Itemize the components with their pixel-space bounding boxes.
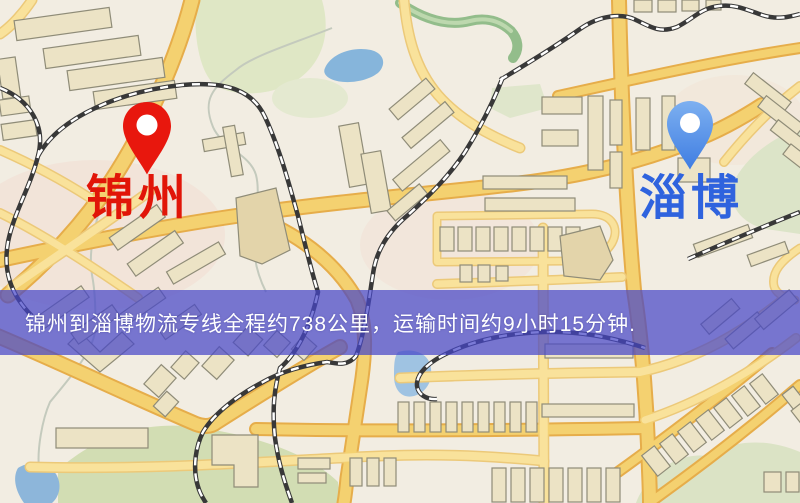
- logistics-route-map-image: 锦州 淄博 锦州到淄博物流专线全程约738公里，运输时间约9小时15分钟.: [0, 0, 800, 503]
- destination-city-label: 淄博: [639, 175, 743, 223]
- origin-city-label: 锦州: [86, 175, 190, 223]
- origin-pin-icon: [120, 100, 174, 183]
- destination-pin-icon: [664, 99, 716, 178]
- route-info-text: 锦州到淄博物流专线全程约738公里，运输时间约9小时15分钟.: [0, 308, 636, 338]
- route-info-banner: 锦州到淄博物流专线全程约738公里，运输时间约9小时15分钟.: [0, 290, 800, 355]
- map-graphic: [0, 0, 800, 503]
